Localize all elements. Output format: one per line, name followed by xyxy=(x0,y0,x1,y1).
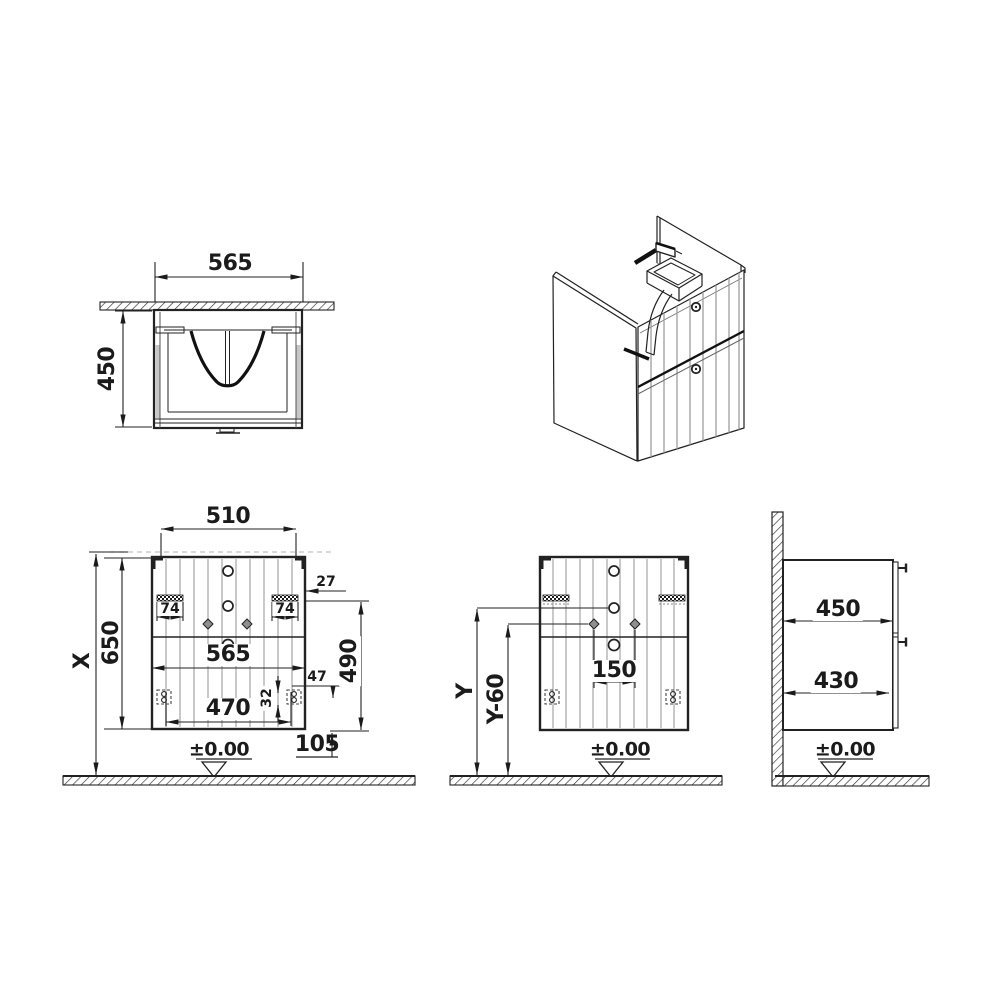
drawer-front-panel xyxy=(893,562,898,728)
dim-carcass-depth: 450 xyxy=(813,599,863,621)
dim-drawer-zone-height: 490 xyxy=(339,636,361,686)
dim-bottom-clearance: 105 xyxy=(295,734,339,756)
dim-drain-height: Y xyxy=(455,683,477,698)
datum-label-installation: ±0.00 xyxy=(590,741,650,760)
technical-drawing-page: 565 450 510 X 650 565 470 74 74 27 490 4… xyxy=(0,0,1000,1000)
hanger-bracket-left xyxy=(543,595,569,601)
wall xyxy=(772,512,783,786)
datum-label-front: ±0.00 xyxy=(189,741,249,760)
dim-cabinet-width: 565 xyxy=(203,644,253,666)
dim-section-height: 450 xyxy=(97,347,119,391)
drawer-slide-right xyxy=(297,345,301,418)
dim-cabinet-height: 650 xyxy=(101,621,123,665)
datum-triangle xyxy=(821,762,845,777)
dim-valve-spacing: 150 xyxy=(589,660,639,682)
hole-middle xyxy=(223,601,233,611)
datum-triangle xyxy=(202,762,226,777)
dim-hanger-edge-offset: 27 xyxy=(316,575,335,589)
floor xyxy=(450,776,722,785)
dim-valve-height: Y-60 xyxy=(486,674,508,724)
dim-overall-height: X xyxy=(72,653,94,669)
dim-foot-inset: 47 xyxy=(307,670,326,684)
cabinet-side xyxy=(783,560,893,730)
hole-top xyxy=(223,566,233,576)
datum-label-side: ±0.00 xyxy=(815,741,875,760)
datum-triangle xyxy=(599,762,623,777)
dim-foot-height: 32 xyxy=(260,685,274,710)
drawing-svg xyxy=(0,0,1000,1000)
hole-top xyxy=(609,566,619,576)
hole-lower xyxy=(609,640,620,651)
floor xyxy=(63,776,415,785)
dim-foot-spacing: 470 xyxy=(203,698,253,720)
dim-drawer-depth: 430 xyxy=(811,671,861,693)
dim-hanger-spacing: 510 xyxy=(206,506,250,528)
cabinet-outline xyxy=(154,310,302,428)
dim-hanger-right: 74 xyxy=(272,602,297,616)
hanger-bracket-right xyxy=(659,595,685,601)
floor xyxy=(783,776,929,786)
drawer-slide-left xyxy=(156,345,160,418)
hole-middle xyxy=(609,603,619,613)
side-panel xyxy=(553,276,637,461)
countertop-band xyxy=(100,302,334,310)
dim-section-width: 565 xyxy=(208,253,252,275)
installation-view xyxy=(450,557,722,785)
dim-hanger-left: 74 xyxy=(157,602,182,616)
perspective-view xyxy=(553,216,745,461)
section-view xyxy=(100,262,334,433)
ext-lines-450 xyxy=(115,311,152,427)
